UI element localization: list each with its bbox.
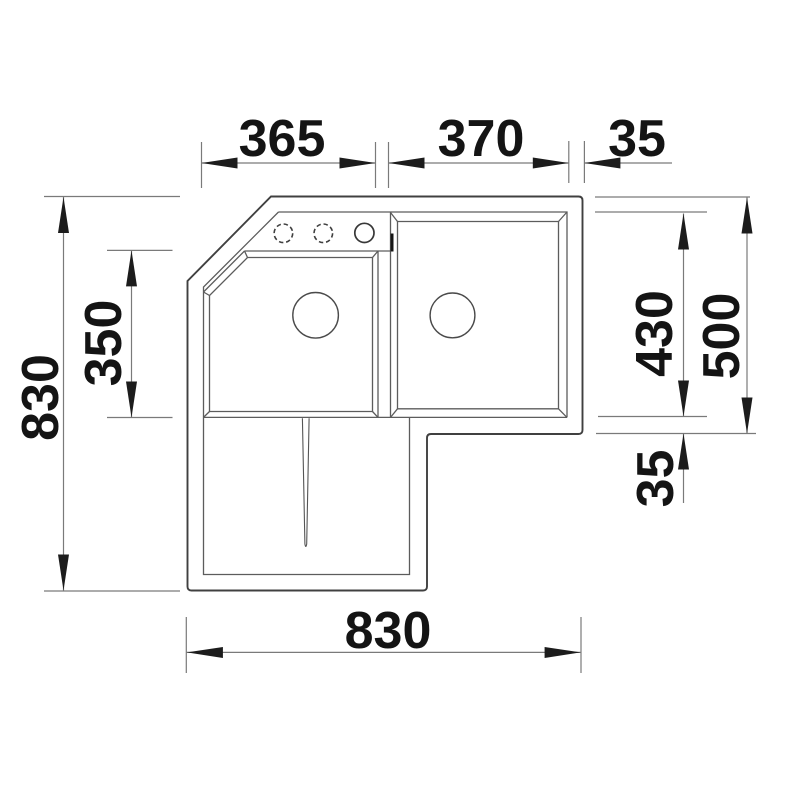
svg-text:35: 35 xyxy=(608,110,666,168)
svg-text:365: 365 xyxy=(239,110,326,168)
svg-text:350: 350 xyxy=(75,300,133,387)
svg-text:35: 35 xyxy=(627,450,685,508)
svg-text:830: 830 xyxy=(12,354,70,441)
svg-text:430: 430 xyxy=(626,290,684,377)
svg-text:500: 500 xyxy=(693,293,751,380)
svg-text:370: 370 xyxy=(438,110,525,168)
svg-text:830: 830 xyxy=(345,602,432,660)
